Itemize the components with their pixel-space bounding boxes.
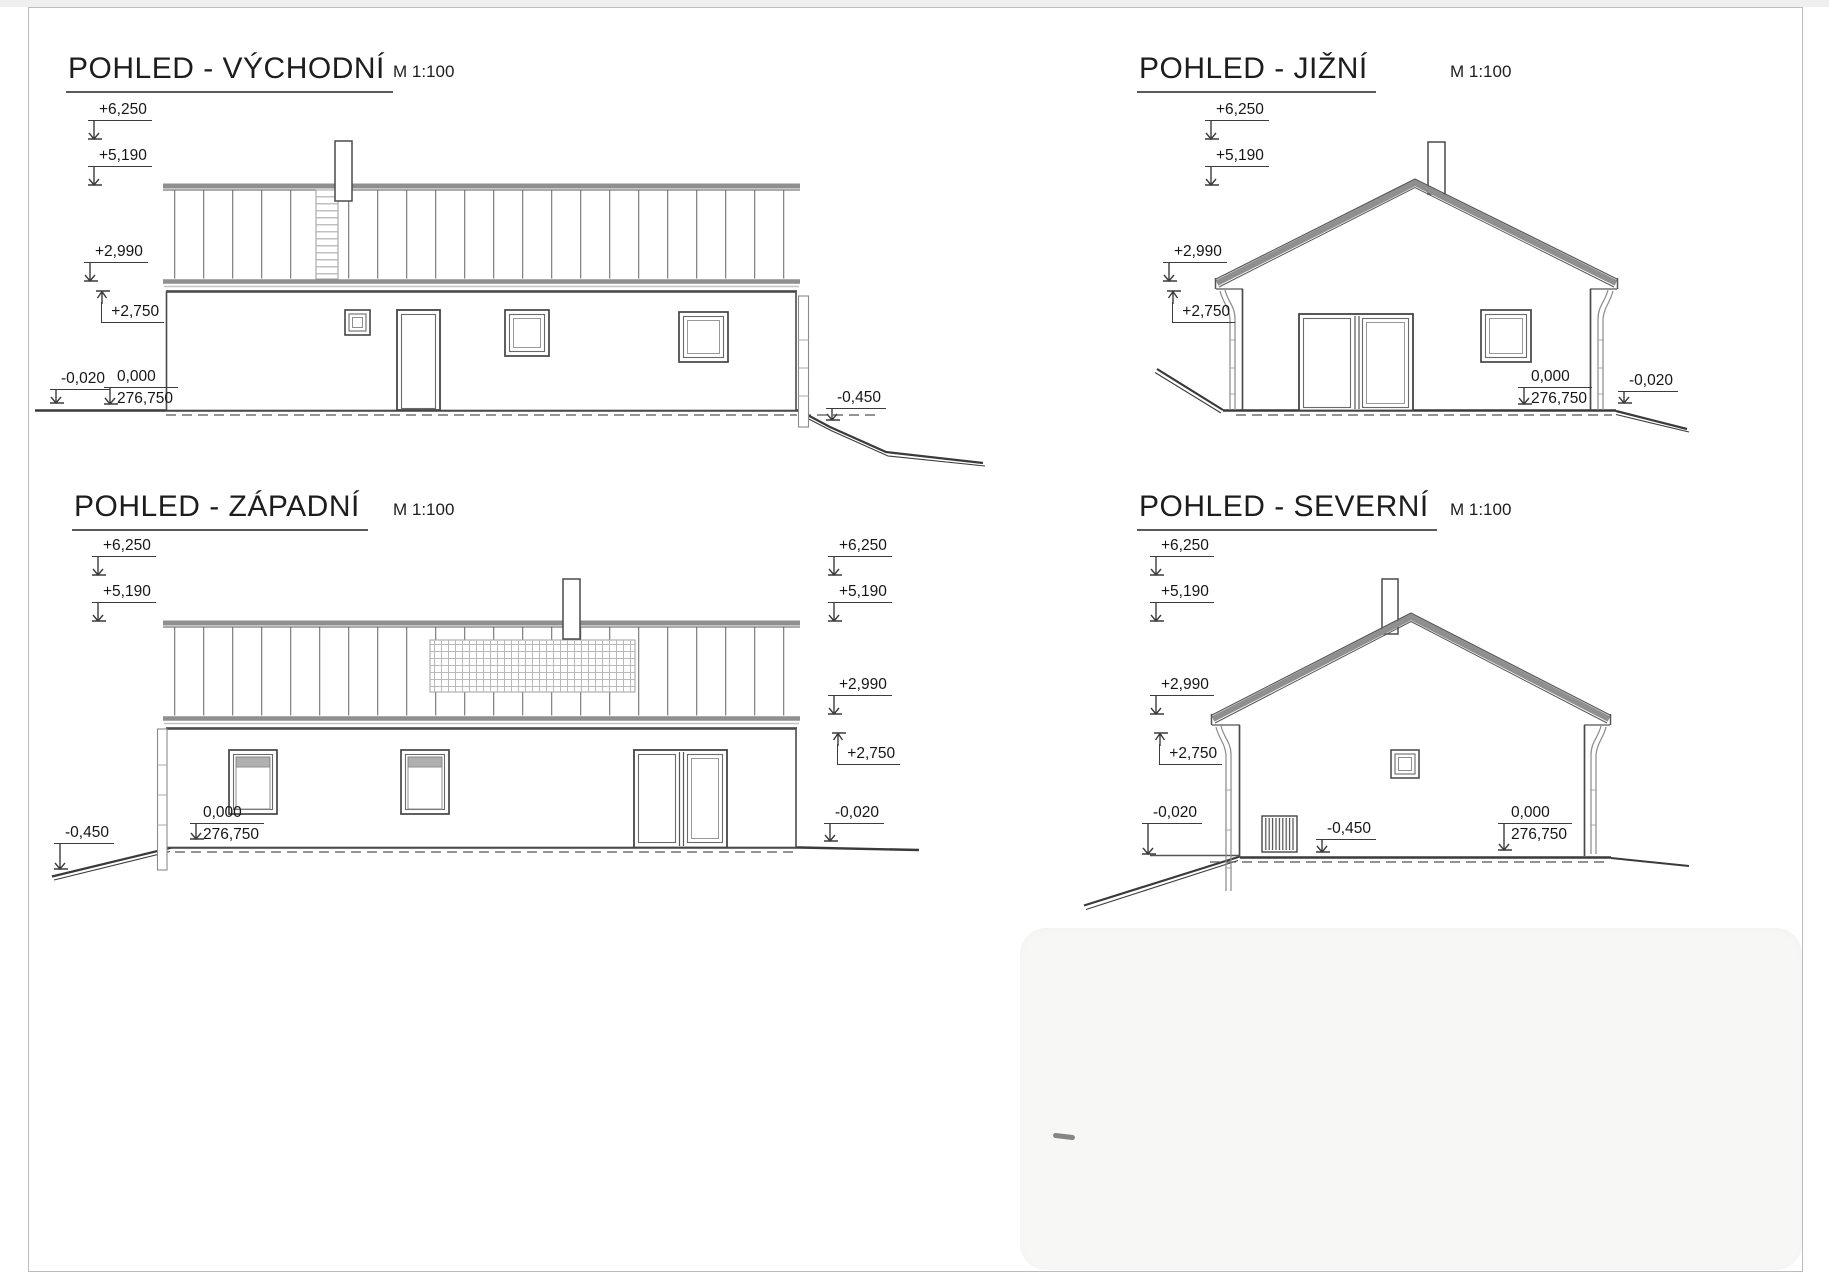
down-arrow-icon xyxy=(104,387,124,411)
south-terrain-slope-left xyxy=(1157,369,1223,410)
level-mark-west-ridge-right: +6,250 xyxy=(828,537,892,582)
east-roof-ladder xyxy=(316,190,338,279)
ground-zero-mark-north: 0,000 276,750 xyxy=(1498,804,1572,844)
terrain-mark-west-low: -0,450 xyxy=(54,824,114,876)
terrain-mark-east-near: -0,020 xyxy=(50,370,110,410)
level-mark-west-ridge-left: +6,250 xyxy=(92,537,156,582)
south-window xyxy=(1481,310,1531,362)
level-label: +6,250 xyxy=(1150,537,1214,557)
level-mark-east-eave-bottom: +2,750 xyxy=(96,288,164,323)
north-terrain-slope xyxy=(1084,857,1240,906)
down-arrow-icon xyxy=(1498,823,1518,857)
down-arrow-icon xyxy=(1150,556,1170,582)
scale-label-west: M 1:100 xyxy=(393,500,454,520)
drawing-sheet: { "sheet": { "kind": "architectural elev… xyxy=(0,0,1829,1280)
east-downspout xyxy=(799,296,809,427)
west-chimney xyxy=(563,579,580,639)
level-mark-north-chimney: +5,190 xyxy=(1150,583,1214,628)
terrain-mark-north-near: -0,020 xyxy=(1142,804,1202,861)
level-label: +2,990 xyxy=(84,243,148,263)
east-roof-standing-seams xyxy=(164,191,798,279)
level-label: -0,450 xyxy=(1316,820,1376,840)
level-label: +2,750 xyxy=(101,302,164,323)
terrain-mark-north-low: -0,450 xyxy=(1316,820,1376,859)
zero-level-label: 0,000 xyxy=(1518,368,1592,388)
level-label: -0,450 xyxy=(54,824,114,844)
zero-level-label: 0,000 xyxy=(190,804,264,824)
scale-label-south: M 1:100 xyxy=(1450,62,1511,82)
south-glazed-door xyxy=(1299,314,1413,411)
down-arrow-icon xyxy=(92,602,112,628)
north-roof xyxy=(1213,617,1609,719)
down-arrow-icon xyxy=(1205,166,1225,192)
terrain-mark-south-near: -0,020 xyxy=(1618,372,1678,410)
down-arrow-icon xyxy=(50,389,70,410)
down-arrow-icon xyxy=(190,823,210,846)
west-solar-panels xyxy=(430,640,635,692)
terrain-mark-east-low: -0,450 xyxy=(826,389,886,427)
elevations-drawing xyxy=(0,0,1829,1280)
scale-label-east: M 1:100 xyxy=(393,62,454,82)
ground-zero-mark-west: 0,000 276,750 xyxy=(190,804,264,844)
south-roof xyxy=(1217,183,1616,283)
east-window-2 xyxy=(679,312,728,362)
zero-level-label: 0,000 xyxy=(104,368,178,388)
level-label: -0,450 xyxy=(826,389,886,409)
ground-zero-mark-south: 0,000 276,750 xyxy=(1518,368,1592,408)
down-arrow-icon xyxy=(826,408,846,427)
level-label: -0,020 xyxy=(824,804,884,824)
level-label: +2,990 xyxy=(1163,243,1227,263)
level-mark-north-ridge: +6,250 xyxy=(1150,537,1214,582)
west-glazed-door xyxy=(634,750,727,848)
level-label: +5,190 xyxy=(1205,147,1269,167)
down-arrow-icon xyxy=(828,695,848,721)
down-arrow-icon xyxy=(1142,823,1162,861)
down-arrow-icon xyxy=(1316,839,1336,859)
north-downspout-right xyxy=(1596,727,1606,854)
west-elevation-drawing xyxy=(52,579,919,880)
level-mark-north-eave-bottom: +2,750 xyxy=(1154,730,1222,765)
ground-zero-mark-east: 0,000 276,750 xyxy=(104,368,178,408)
level-label: +2,990 xyxy=(828,676,892,696)
down-arrow-icon xyxy=(84,262,104,288)
level-mark-east-eave-top: +2,990 xyxy=(84,243,148,288)
east-chimney xyxy=(335,141,352,201)
level-mark-south-ridge: +6,250 xyxy=(1205,101,1269,146)
down-arrow-icon xyxy=(88,166,108,192)
down-arrow-icon xyxy=(54,843,74,876)
down-arrow-icon xyxy=(1150,602,1170,628)
down-arrow-icon xyxy=(1205,120,1225,146)
level-mark-west-eave-bottom: +2,750 xyxy=(832,730,900,765)
level-label: -0,020 xyxy=(50,370,110,390)
level-label: +2,750 xyxy=(1172,302,1235,323)
down-arrow-icon xyxy=(92,556,112,582)
level-label: -0,020 xyxy=(1618,372,1678,392)
zero-level-label: 0,000 xyxy=(1498,804,1572,824)
level-label: +5,190 xyxy=(92,583,156,603)
down-arrow-icon xyxy=(828,602,848,628)
terrain-mark-west-near: -0,020 xyxy=(824,804,884,848)
level-label: +2,750 xyxy=(1159,744,1222,765)
level-label: +5,190 xyxy=(88,147,152,167)
east-window-1 xyxy=(505,310,549,356)
down-arrow-icon xyxy=(1618,391,1638,410)
level-label: +5,190 xyxy=(1150,583,1214,603)
level-label: +6,250 xyxy=(1205,101,1269,121)
level-label: +6,250 xyxy=(88,101,152,121)
level-mark-east-chimney: +5,190 xyxy=(88,147,152,192)
view-title-south: POHLED - JIŽNÍ xyxy=(1137,52,1376,93)
level-label: +2,990 xyxy=(1150,676,1214,696)
down-arrow-icon xyxy=(1150,695,1170,721)
south-terrain-slope-right xyxy=(1616,411,1687,429)
down-arrow-icon xyxy=(88,120,108,146)
view-title-west: POHLED - ZÁPADNÍ xyxy=(72,490,368,531)
level-label: -0,020 xyxy=(1142,804,1202,824)
level-mark-west-chimney-left: +5,190 xyxy=(92,583,156,628)
level-mark-east-ridge: +6,250 xyxy=(88,101,152,146)
level-label: +6,250 xyxy=(828,537,892,557)
scale-label-north: M 1:100 xyxy=(1450,500,1511,520)
level-mark-north-eave-top: +2,990 xyxy=(1150,676,1214,721)
level-mark-west-eave-top: +2,990 xyxy=(828,676,892,721)
down-arrow-icon xyxy=(1163,262,1183,288)
level-mark-south-eave-bottom: +2,750 xyxy=(1167,288,1235,323)
level-mark-south-chimney: +5,190 xyxy=(1205,147,1269,192)
east-door xyxy=(397,310,440,410)
view-title-east: POHLED - VÝCHODNÍ xyxy=(66,52,393,93)
south-downspout-right xyxy=(1603,291,1613,410)
down-arrow-icon xyxy=(824,823,844,848)
down-arrow-icon xyxy=(1518,387,1538,411)
level-label: +2,750 xyxy=(837,744,900,765)
west-downspout xyxy=(158,729,168,870)
level-label: +5,190 xyxy=(828,583,892,603)
level-mark-west-chimney-right: +5,190 xyxy=(828,583,892,628)
view-title-north: POHLED - SEVERNÍ xyxy=(1137,490,1437,531)
level-mark-south-eave-top: +2,990 xyxy=(1163,243,1227,288)
down-arrow-icon xyxy=(828,556,848,582)
level-label: +6,250 xyxy=(92,537,156,557)
